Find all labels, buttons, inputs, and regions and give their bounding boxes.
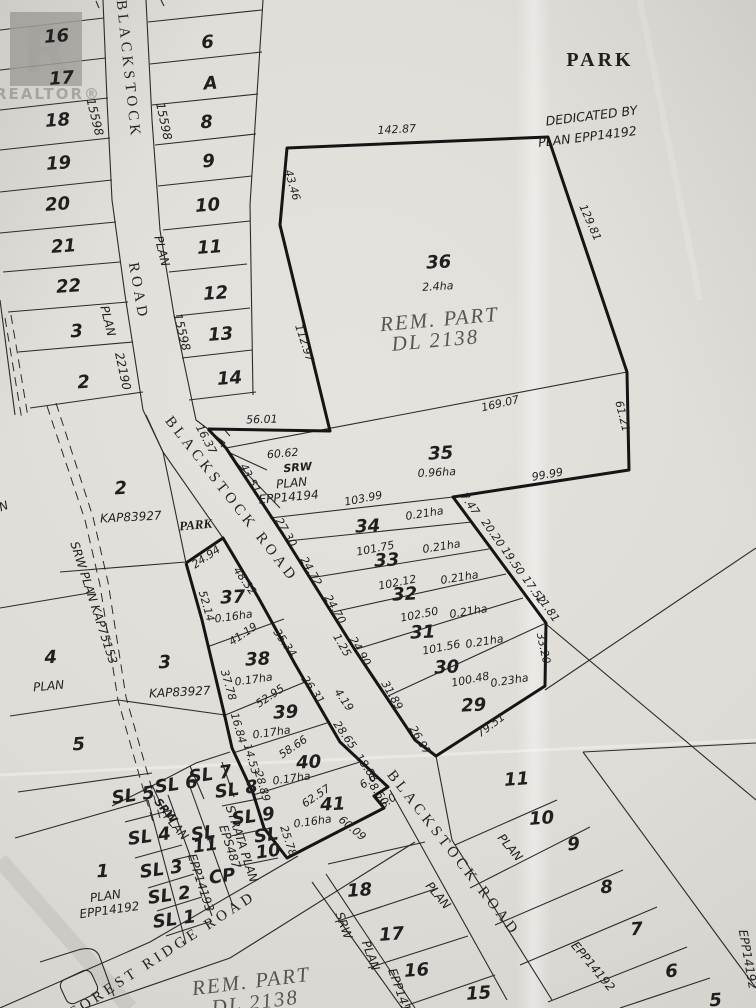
lot-11-lower: 11 [503,768,529,791]
road-blackstock-upper2: ROAD [125,261,151,321]
meas-24-72: 24.72 [298,554,325,588]
area-38: 0.17ha [234,670,274,688]
meas-35-34: 35.34 [271,626,300,659]
lot-29: 29 [461,694,487,716]
park-title: PARK [566,49,633,71]
area-33: 0.21ha [422,537,462,556]
lot-35: 35 [428,442,454,464]
partial-n: N [0,498,10,514]
park-triangle: PARK [179,515,214,533]
lot-36: 36 [426,251,452,273]
lot-33: 33 [374,549,400,571]
area-41: 0.16ha [293,812,333,830]
plan-kap83927: KAP83927 [100,508,163,525]
lot-39: 39 [273,701,299,723]
lot-38: 38 [245,648,271,670]
lot-20: 20 [44,193,70,216]
plan-kap83927-2: KAP83927 [149,683,212,700]
plat-map: R REALTOR® 161718192021223215598PLAN2219… [0,0,756,1008]
srw-epp14194: EPP14194 [258,487,319,506]
plan-15598-right2: 15598 [170,312,193,353]
lot-13: 13 [207,323,233,346]
meas-24-94: 24.94 [189,543,222,571]
area-40: 0.17ha [272,769,312,787]
plan-15598-left: 15598 [83,97,106,138]
lot-3-upper: 3 [70,321,84,343]
lot-2-kap: 2 [114,478,128,500]
meas-169-07: 169.07 [480,393,520,414]
area-31: 0.21ha [449,602,489,621]
paper-creases [0,0,756,1008]
lot-5-lower: 5 [709,990,723,1008]
plan-15598-right: 15598 [153,101,175,142]
plan-left: PLAN [97,304,118,338]
lot-9: 9 [202,151,216,173]
lot-16: 16 [43,25,69,48]
meas-26-97: 26.97 [407,723,434,757]
lot-8-lower: 8 [600,877,614,899]
plan-22190: 22190 [112,351,134,392]
srw-label: SRW [283,460,313,476]
area-34: 0.21ha [405,504,445,523]
lot-15-lower: 15 [465,982,491,1005]
lot-34: 34 [355,515,381,537]
area-36: 2.4ha [422,279,454,294]
lot-41: 41 [319,793,346,815]
meas-4-19: 4.19 [332,686,357,714]
lot-1: 1 [96,861,110,883]
meas-56-01: 56.01 [246,412,278,426]
lot-18: 18 [44,109,70,132]
lot-4: 4 [43,647,58,669]
parcel-lines [0,0,756,1008]
lot-10-lower: 10 [528,807,554,830]
area-39: 0.17ha [252,723,292,741]
meas-41-19: 41.19 [226,620,259,648]
lot-31: 31 [410,621,436,643]
lot-2-upper: 2 [77,372,91,394]
plan-epp14192-road: EPP14192 [568,939,617,994]
lot-37: 37 [220,586,247,608]
area-30: 0.21ha [465,632,505,651]
lot-12: 12 [202,282,228,305]
srw-kap75153: SRW PLAN KAP75153 [67,540,120,666]
road-blackstock-lower: BLACKSTOCK ROAD [383,767,522,939]
lot-22: 22 [55,275,81,298]
meas-26-31: 26.31 [299,673,328,706]
lot-sl10b: 10 [254,839,282,863]
lot-4-plan: PLAN [33,678,65,695]
lot-17: 17 [48,67,75,90]
lot-3-kap: 3 [158,652,172,674]
lot-sl4: SL 4 [126,823,172,850]
lot-5-left: 5 [72,734,86,756]
lot-6: 6 [201,32,215,54]
road-blackstock-upper: BLACKSTOCK [113,0,144,140]
lot-1-epp14192: EPP14192 [79,899,141,921]
lot-32: 32 [392,583,418,605]
lot-a: A [201,73,218,95]
map-labels-layer: 161718192021223215598PLAN221906A89101112… [0,0,756,1008]
lot-10: 10 [194,194,220,217]
meas-60-62: 60.62 [266,446,299,462]
meas-20-20: 20.20 [479,516,508,549]
lot-19: 19 [45,152,71,175]
lot-11-upper: 11 [196,236,222,259]
lot-9-lower: 9 [567,834,581,856]
lot-7-lower: 7 [630,919,644,941]
plan-epp14192-right: EPP14192 [736,928,756,990]
meas-142-87: 142.87 [377,122,416,137]
area-35: 0.96ha [417,465,456,480]
lot-16-lower: 16 [403,959,429,982]
srw-lower: SRW [332,910,355,942]
meas-61-21: 61.21 [612,399,632,433]
meas-31-89: 31.89 [379,678,406,712]
lot-14: 14 [216,367,242,390]
lot-8: 8 [200,112,214,134]
meas-112-97: 112.97 [292,323,316,364]
lot-6-lower: 6 [665,961,679,983]
plan-right: PLAN [151,234,172,268]
lot-21: 21 [50,235,76,258]
lot-17-lower: 17 [378,923,405,946]
plat-map-photo: R REALTOR® 161718192021223215598PLAN2219… [0,0,756,1008]
lot-18-lower: 18 [346,879,372,902]
